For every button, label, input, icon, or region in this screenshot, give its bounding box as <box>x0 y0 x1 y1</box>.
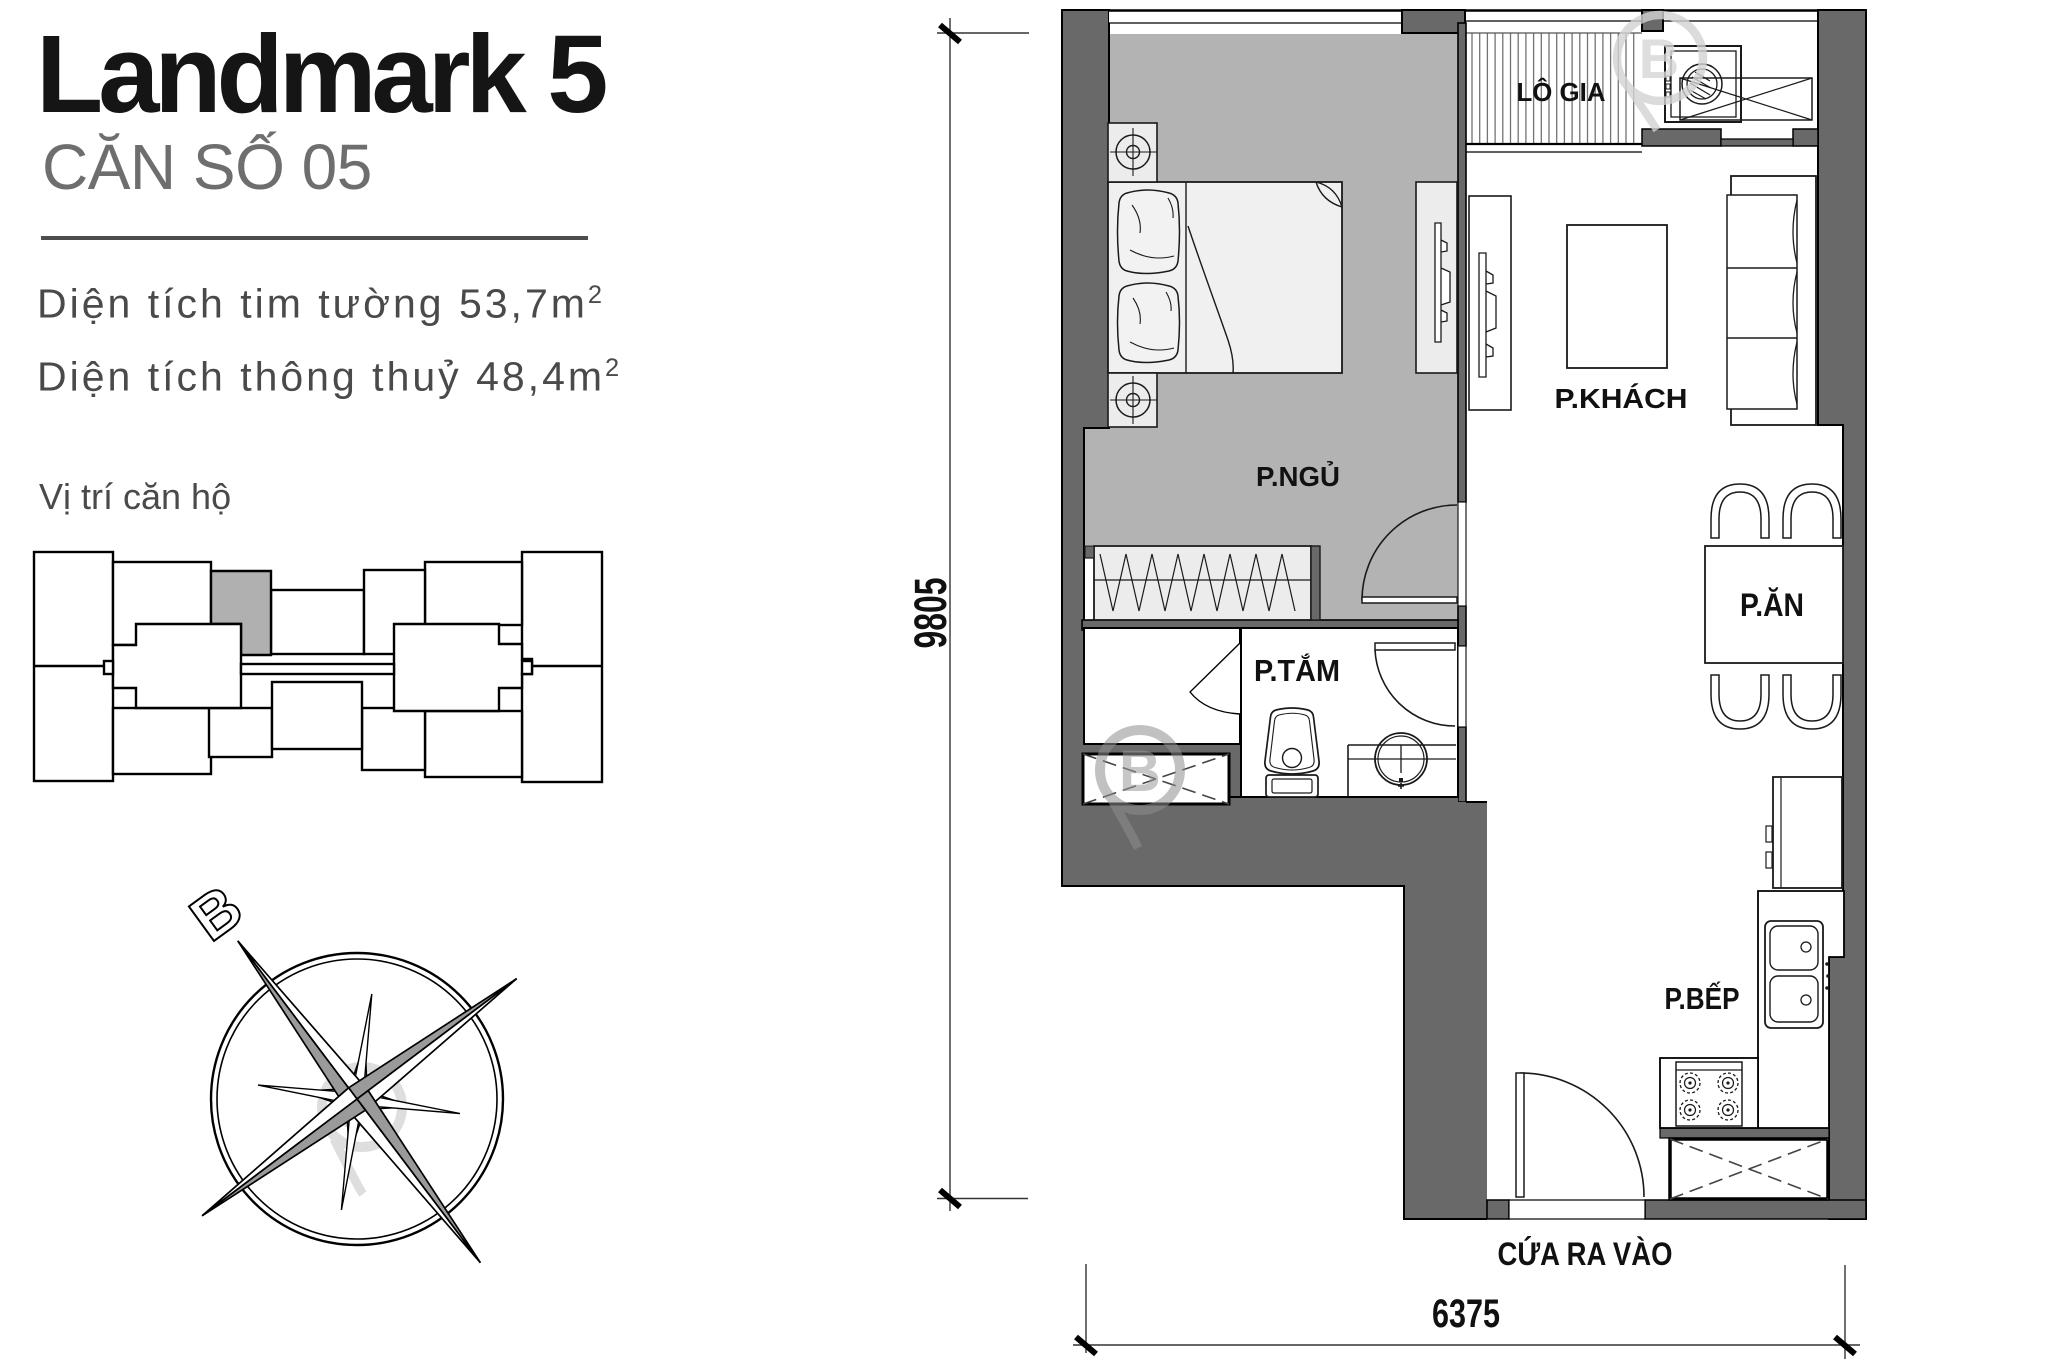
svg-text:LÔ GIA: LÔ GIA <box>1517 77 1606 107</box>
svg-text:B: B <box>178 873 255 955</box>
svg-text:9805: 9805 <box>905 578 956 649</box>
svg-text:P.BẾP: P.BẾP <box>1665 981 1740 1016</box>
svg-text:B: B <box>1639 27 1679 90</box>
svg-text:6375: 6375 <box>1432 1292 1500 1336</box>
svg-text:B: B <box>1119 739 1161 804</box>
svg-text:P.ĂN: P.ĂN <box>1740 587 1804 623</box>
svg-text:P.NGỦ: P.NGỦ <box>1256 460 1340 492</box>
svg-text:P.KHÁCH: P.KHÁCH <box>1555 383 1688 414</box>
svg-text:CỨA RA VÀO: CỨA RA VÀO <box>1498 1236 1673 1272</box>
svg-text:P.TẮM: P.TẮM <box>1254 652 1340 688</box>
